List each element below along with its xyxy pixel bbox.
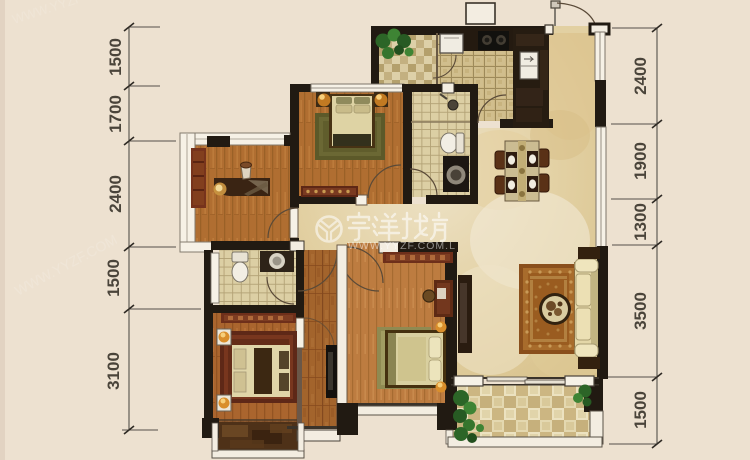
svg-text:1500: 1500 [104,259,123,297]
svg-text:3100: 3100 [104,352,123,390]
svg-text:WWW.YYZF.COM.L: WWW.YYZF.COM.L [348,240,456,252]
svg-text:1700: 1700 [106,95,125,133]
svg-text:3500: 3500 [631,292,650,330]
svg-text:2400: 2400 [631,57,650,95]
svg-text:1500: 1500 [631,391,650,429]
svg-text:2400: 2400 [106,175,125,213]
svg-text:1300: 1300 [631,203,650,241]
svg-text:1500: 1500 [106,38,125,76]
svg-text:1900: 1900 [631,142,650,180]
